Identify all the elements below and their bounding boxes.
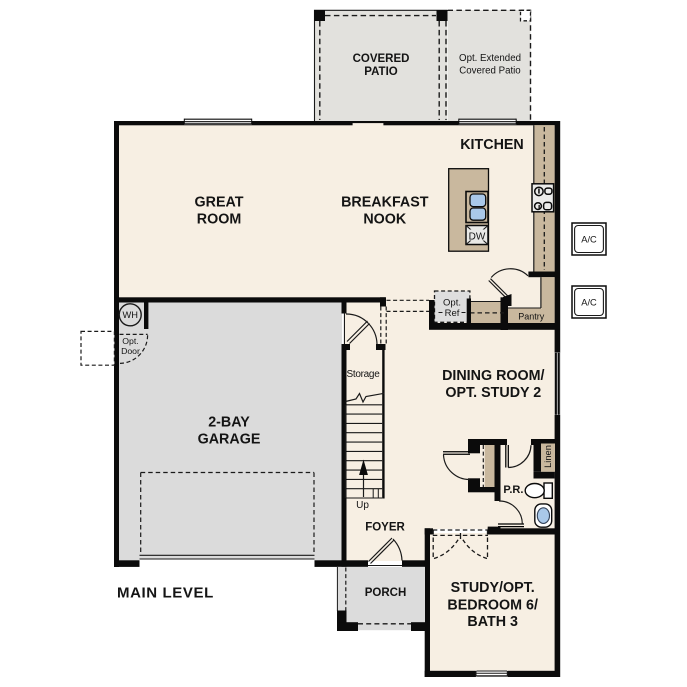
svg-text:Storage: Storage [347, 369, 381, 380]
svg-text:GARAGE: GARAGE [198, 431, 261, 447]
svg-text:Opt.: Opt. [443, 298, 461, 309]
svg-text:Pantry: Pantry [518, 312, 545, 322]
svg-text:ROOM: ROOM [197, 212, 241, 228]
svg-text:A/C: A/C [581, 235, 597, 245]
svg-text:KITCHEN: KITCHEN [460, 137, 524, 153]
svg-text:COVERED: COVERED [353, 53, 410, 65]
svg-text:STUDY/OPT.: STUDY/OPT. [451, 580, 535, 596]
svg-text:FOYER: FOYER [365, 521, 405, 533]
svg-text:Door: Door [121, 346, 140, 356]
svg-text:OPT. STUDY 2: OPT. STUDY 2 [445, 385, 541, 401]
svg-text:Opt.: Opt. [122, 336, 138, 346]
svg-text:DW: DW [469, 231, 486, 242]
svg-text:DINING ROOM/: DINING ROOM/ [442, 368, 544, 384]
svg-text:Opt. Extended: Opt. Extended [459, 53, 521, 64]
svg-text:Linen: Linen [543, 445, 553, 468]
svg-text:WH: WH [122, 310, 138, 320]
svg-text:P.R.: P.R. [503, 484, 523, 496]
svg-text:PATIO: PATIO [364, 66, 397, 78]
svg-text:BEDROOM 6/: BEDROOM 6/ [447, 597, 538, 613]
svg-text:Ref: Ref [445, 308, 460, 319]
svg-text:Covered Patio: Covered Patio [459, 66, 520, 77]
svg-text:BREAKFAST: BREAKFAST [341, 194, 429, 210]
svg-text:2-BAY: 2-BAY [208, 415, 250, 431]
svg-text:PORCH: PORCH [365, 587, 407, 599]
svg-text:Up: Up [356, 500, 369, 511]
svg-text:A/C: A/C [581, 298, 597, 308]
svg-text:NOOK: NOOK [363, 212, 407, 228]
svg-text:MAIN LEVEL: MAIN LEVEL [117, 585, 214, 602]
svg-text:BATH 3: BATH 3 [467, 614, 518, 630]
svg-text:GREAT: GREAT [195, 194, 244, 210]
